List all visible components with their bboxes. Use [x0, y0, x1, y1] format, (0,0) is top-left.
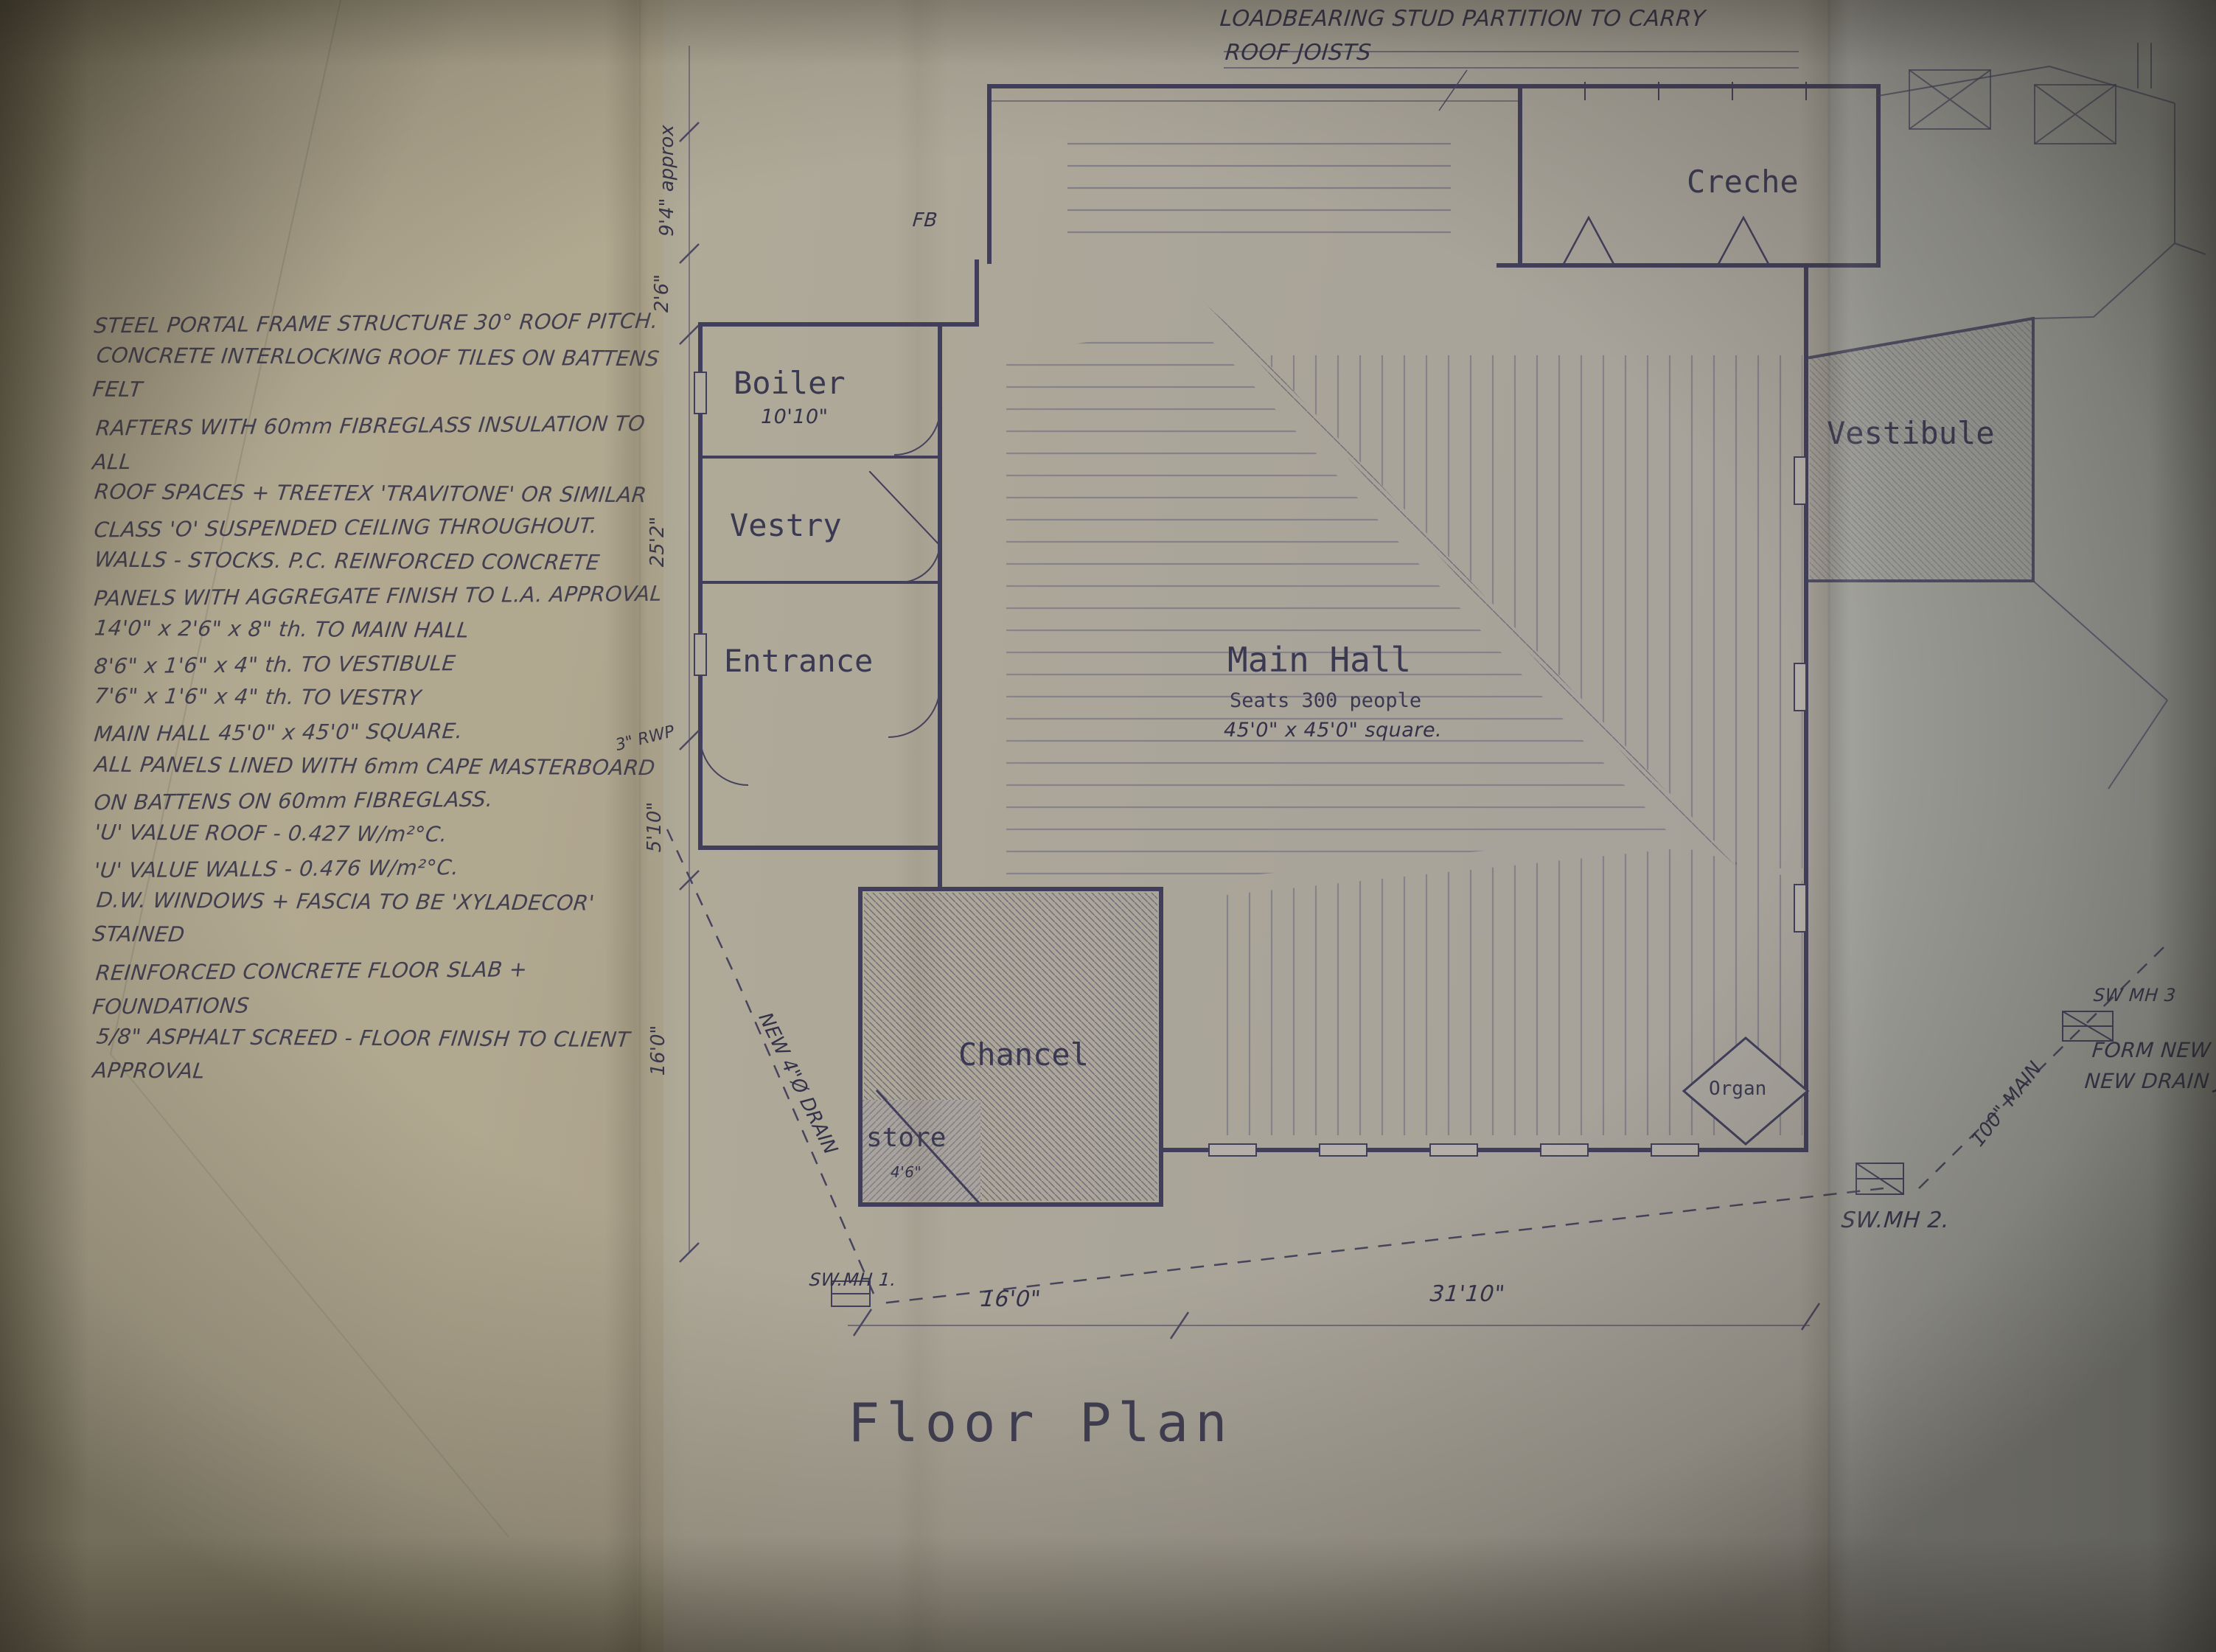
room-label-main-hall: Main Hall	[1227, 640, 1411, 680]
spec-note-line: REINFORCED CONCRETE FLOOR SLAB + FOUNDAT…	[91, 951, 688, 1024]
dim-bottom-31-10: 31'10"	[1429, 1281, 1505, 1307]
dim-left-16-0: 16'0"	[647, 1025, 669, 1076]
note-form-new-mh: FORM NEW MH	[2091, 1038, 2216, 1062]
spec-note-line: RAFTERS WITH 60mm FIBREGLASS INSULATION …	[91, 406, 688, 479]
spec-note-line: 5/8" ASPHALT SCREED - FLOOR FINISH TO CL…	[91, 1020, 688, 1092]
specification-notes: STEEL PORTAL FRAME STRUCTURE 30° ROOF PI…	[94, 307, 684, 1090]
dim-left-25-2: 25'2"	[647, 517, 669, 568]
drawing-title: Floor Plan	[848, 1392, 1233, 1454]
dim-left-9-4-approx: 9'4" approx	[656, 125, 678, 236]
door-swings	[700, 409, 940, 785]
room-label-creche: Creche	[1687, 164, 1799, 200]
note-new-drain: NEW DRAIN JO	[2084, 1069, 2216, 1093]
room-label-vestibule: Vestibule	[1827, 415, 1995, 451]
dim-left-2-6: 2'6"	[651, 274, 673, 313]
spec-note-line: 14'0" x 2'6" x 8" th. TO MAIN HALL	[93, 611, 686, 649]
boiler-size: 10'10"	[761, 405, 829, 428]
spec-note-line: CONCRETE INTERLOCKING ROOF TILES ON BATT…	[91, 339, 688, 411]
spec-note-line: ALL PANELS LINED WITH 6mm CAPE MASTERBOA…	[93, 747, 686, 785]
top-partition-note-line1: LOADBEARING STUD PARTITION TO CARRY	[1219, 6, 1706, 32]
spec-note-line: CLASS 'O' SUSPENDED CEILING THROUGHOUT.	[92, 509, 686, 548]
spec-note-line: STEEL PORTAL FRAME STRUCTURE 30° ROOF PI…	[92, 304, 686, 344]
spec-note-line: 'U' VALUE ROOF - 0.427 W/m²°C.	[93, 816, 686, 854]
spec-note-line: MAIN HALL 45'0" x 45'0" SQUARE.	[92, 713, 686, 752]
spec-note-line: ROOF SPACES + TREETEX 'TRAVITONE' OR SIM…	[93, 475, 686, 513]
fb-marker: FB	[912, 209, 938, 231]
manhole-1-label: SW.MH 1.	[809, 1269, 897, 1290]
room-label-chancel: Chancel	[958, 1036, 1089, 1073]
top-pew-rows	[1067, 124, 1451, 243]
organ-label: Organ	[1709, 1078, 1766, 1100]
main-hall-capacity: Seats 300 people	[1230, 689, 1421, 712]
manhole-3-label: SW MH 3	[2093, 985, 2177, 1006]
spec-note-line: 7'6" x 1'6" x 4" th. TO VESTRY	[93, 680, 686, 717]
spec-note-line: PANELS WITH AGGREGATE FINISH TO L.A. APP…	[92, 576, 686, 616]
room-label-vestry: Vestry	[730, 507, 842, 543]
spec-note-line: D.W. WINDOWS + FASCIA TO BE 'XYLADECOR' …	[91, 884, 688, 955]
main-hall-size: 45'0" x 45'0" square.	[1224, 719, 1442, 742]
spec-note-line: 8'6" x 1'6" x 4" th. TO VESTIBULE	[92, 645, 686, 684]
dim-left-5-10: 5'10"	[644, 802, 666, 853]
spec-note-line: 'U' VALUE WALLS - 0.476 W/m²°C.	[92, 849, 686, 888]
room-label-store: store	[866, 1123, 946, 1153]
photograph-of-floor-plan: STEEL PORTAL FRAME STRUCTURE 30° ROOF PI…	[0, 0, 2216, 1652]
dim-bottom-16-0: 16'0"	[979, 1286, 1042, 1312]
spec-note-line: ON BATTENS ON 60mm FIBREGLASS.	[92, 781, 686, 820]
room-label-entrance: Entrance	[724, 643, 873, 679]
spec-note-line: WALLS - STOCKS. P.C. REINFORCED CONCRETE	[93, 543, 686, 581]
room-label-boiler: Boiler	[734, 365, 846, 401]
top-partition-note-line2: ROOF JOISTS	[1224, 40, 1372, 66]
manhole-2-label: SW.MH 2.	[1840, 1207, 1950, 1233]
store-size: 4'6"	[891, 1163, 921, 1181]
